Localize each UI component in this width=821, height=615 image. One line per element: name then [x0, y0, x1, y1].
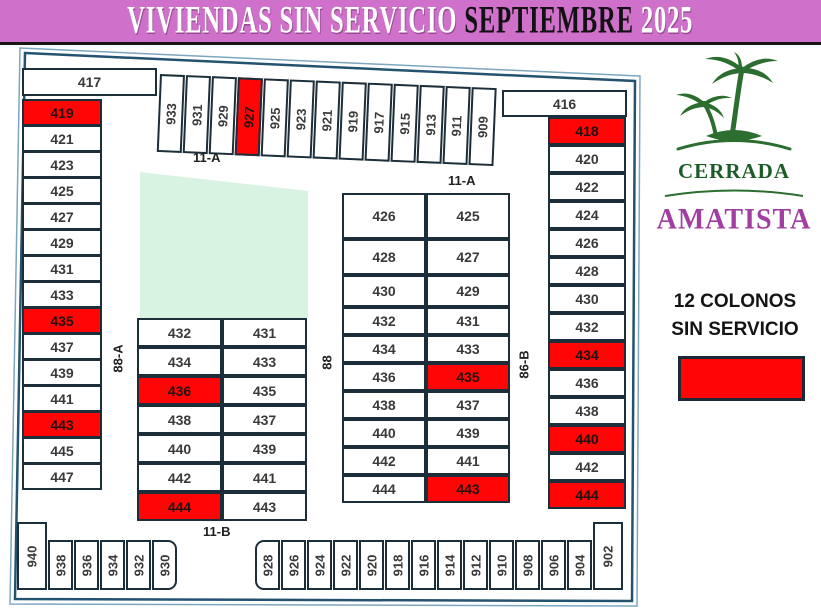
lot-number: 422	[575, 179, 598, 195]
lot-number: 416	[553, 96, 576, 112]
logo-name-top: CERRADA	[650, 159, 818, 184]
lot-number: 439	[456, 425, 479, 441]
lot-number: 908	[520, 554, 535, 576]
lot-number: 427	[456, 249, 479, 265]
lot-443: 443	[22, 411, 102, 438]
lot-417: 417	[22, 68, 157, 96]
lot-442: 442	[137, 463, 222, 492]
lot-number: 425	[50, 183, 73, 199]
street-label-11b: 11-B	[203, 524, 230, 539]
lot-number: 440	[575, 431, 598, 447]
lot-436: 436	[342, 363, 426, 391]
lot-440: 440	[137, 434, 222, 463]
left-lot-column: 4194214234254274294314334354374394414434…	[22, 100, 102, 490]
lot-932: 932	[126, 540, 151, 590]
logo-cerrada-amatista: CERRADA AMATISTA	[650, 52, 818, 236]
street-label-text: 86-B	[517, 350, 532, 378]
lot-number: 431	[456, 313, 479, 329]
lot-row: 426425	[342, 193, 510, 239]
lot-915: 915	[391, 84, 419, 163]
lot-928: 928	[255, 540, 280, 590]
lot-number: 443	[456, 481, 479, 497]
lot-number: 921	[319, 109, 335, 131]
right-lot-column: 4184204224244264284304324344364384404424…	[548, 117, 626, 509]
lot-441: 441	[22, 385, 102, 412]
lot-number: 902	[600, 545, 615, 567]
lot-427: 427	[426, 239, 510, 275]
lot-number: 918	[390, 554, 405, 576]
lot-419: 419	[22, 99, 102, 126]
lot-435: 435	[22, 307, 102, 334]
lot-929: 929	[209, 76, 237, 155]
lot-440: 440	[342, 419, 426, 447]
street-label-86b: 86-B	[506, 338, 542, 390]
lot-number: 911	[449, 115, 465, 137]
lot-938: 938	[48, 540, 73, 590]
lot-421: 421	[22, 125, 102, 152]
lot-row: 428427	[342, 239, 510, 275]
lot-436: 436	[137, 376, 222, 405]
street-label-11a-right: 11-A	[448, 173, 475, 188]
lot-number: 435	[253, 383, 276, 399]
palm-trees-icon	[664, 52, 804, 156]
lot-433: 433	[222, 347, 307, 376]
logo-name-bottom: AMATISTA	[650, 203, 818, 237]
lot-number: 428	[372, 249, 395, 265]
lot-number: 430	[372, 283, 395, 299]
lot-437: 437	[222, 405, 307, 434]
legend-caption-line2: SIN SERVICIO	[655, 316, 815, 344]
lot-number: 922	[338, 554, 353, 576]
lot-445: 445	[22, 437, 102, 464]
lot-431: 431	[222, 318, 307, 347]
lot-number: 914	[442, 554, 457, 576]
lot-426: 426	[342, 193, 426, 239]
lot-number: 429	[456, 283, 479, 299]
lot-430: 430	[342, 275, 426, 307]
lot-number: 421	[50, 131, 73, 147]
lot-number: 441	[456, 453, 479, 469]
lot-444: 444	[137, 492, 222, 521]
lot-number: 444	[372, 481, 395, 497]
lot-number: 931	[189, 103, 205, 125]
lot-927: 927	[235, 77, 263, 156]
lot-916: 916	[411, 540, 436, 590]
lot-number: 433	[50, 287, 73, 303]
center-left-lot-block: 4324314344334364354384374404394424414444…	[137, 318, 307, 521]
lot-number: 938	[53, 554, 68, 576]
lot-number: 424	[575, 207, 598, 223]
lot-431: 431	[426, 307, 510, 335]
lot-number: 445	[50, 443, 73, 459]
lot-row: 432431	[342, 307, 510, 335]
lot-number: 435	[456, 369, 479, 385]
lot-933: 933	[157, 74, 185, 153]
lot-number: 917	[371, 111, 387, 133]
lot-number: 925	[267, 107, 283, 129]
lot-number: 441	[50, 391, 73, 407]
lot-number: 936	[79, 554, 94, 576]
lot-433: 433	[22, 281, 102, 308]
lot-440: 440	[548, 425, 626, 453]
lot-row: 440439	[342, 419, 510, 447]
lot-number: 442	[372, 453, 395, 469]
lot-442: 442	[548, 453, 626, 481]
lot-435: 435	[426, 363, 510, 391]
lot-number: 920	[364, 554, 379, 576]
lot-row: 438437	[342, 391, 510, 419]
lot-426: 426	[548, 229, 626, 257]
lot-number: 426	[575, 235, 598, 251]
lot-931: 931	[183, 75, 211, 154]
lot-909: 909	[468, 87, 496, 166]
lot-row: 430429	[342, 275, 510, 307]
lot-422: 422	[548, 173, 626, 201]
lot-number: 912	[468, 554, 483, 576]
lot-434: 434	[342, 335, 426, 363]
lot-441: 441	[426, 447, 510, 475]
lot-444: 444	[548, 481, 626, 509]
lot-430: 430	[548, 285, 626, 313]
lot-936: 936	[74, 540, 99, 590]
lot-number: 426	[372, 208, 395, 224]
lot-number: 430	[575, 291, 598, 307]
title-year: 2025	[641, 0, 693, 42]
lot-912: 912	[463, 540, 488, 590]
street-label-text: 88	[320, 355, 335, 369]
lot-425: 425	[426, 193, 510, 239]
lot-number: 440	[168, 441, 191, 457]
lot-930: 930	[152, 540, 177, 590]
lot-923: 923	[287, 79, 315, 158]
lot-917: 917	[365, 83, 393, 162]
lot-number: 437	[50, 339, 73, 355]
lot-number: 443	[50, 417, 73, 433]
lot-number: 418	[575, 123, 598, 139]
lot-row: 436435	[342, 363, 510, 391]
lot-row: 436435	[137, 376, 307, 405]
lot-447: 447	[22, 463, 102, 490]
lot-444: 444	[342, 475, 426, 503]
lot-number: 432	[372, 313, 395, 329]
lot-425: 425	[22, 177, 102, 204]
lot-436: 436	[548, 369, 626, 397]
lot-row: 444443	[137, 492, 307, 521]
lot-row: 442441	[137, 463, 307, 492]
lot-906: 906	[541, 540, 566, 590]
lot-number: 447	[50, 469, 73, 485]
lot-432: 432	[342, 307, 426, 335]
lot-row: 442441	[342, 447, 510, 475]
lot-443: 443	[426, 475, 510, 503]
lot-922: 922	[333, 540, 358, 590]
lot-918: 918	[385, 540, 410, 590]
lot-number: 910	[494, 554, 509, 576]
lot-number: 435	[50, 313, 73, 329]
lot-434: 434	[137, 347, 222, 376]
lot-439: 439	[222, 434, 307, 463]
lot-number: 904	[572, 554, 587, 576]
lot-number: 906	[546, 554, 561, 576]
lot-number: 928	[260, 554, 275, 576]
lot-number: 927	[241, 106, 257, 128]
lot-913: 913	[417, 85, 445, 164]
lot-number: 431	[50, 261, 73, 277]
lot-row: 440439	[137, 434, 307, 463]
lot-904: 904	[567, 540, 592, 590]
lot-number: 438	[372, 397, 395, 413]
lot-number: 916	[416, 554, 431, 576]
lot-number: 441	[253, 470, 276, 486]
lot-910: 910	[489, 540, 514, 590]
street-label-text: 88-A	[111, 344, 126, 372]
lot-429: 429	[426, 275, 510, 307]
title-bar: VIVIENDAS SIN SERVICIO SEPTIEMBRE 2025	[0, 0, 821, 45]
lot-924: 924	[307, 540, 332, 590]
lot-908: 908	[515, 540, 540, 590]
lot-number: 437	[253, 412, 276, 428]
street-label-11a-top: 11-A	[193, 150, 220, 165]
lot-number: 933	[163, 102, 179, 124]
lot-number: 919	[345, 110, 361, 132]
lot-443: 443	[222, 492, 307, 521]
lot-number: 432	[575, 319, 598, 335]
lot-940: 940	[17, 522, 47, 590]
lot-442: 442	[342, 447, 426, 475]
lot-number: 442	[575, 459, 598, 475]
lot-row: 438437	[137, 405, 307, 434]
lot-number: 429	[50, 235, 73, 251]
center-right-lot-block: 4264254284274304294324314344334364354384…	[342, 193, 510, 503]
lot-437: 437	[22, 333, 102, 360]
lot-number: 915	[397, 112, 413, 134]
lot-row: 434433	[342, 335, 510, 363]
legend-red-swatch	[678, 356, 805, 401]
lot-427: 427	[22, 203, 102, 230]
lot-number: 909	[475, 115, 491, 137]
lot-429: 429	[22, 229, 102, 256]
lot-number: 439	[50, 365, 73, 381]
title-main: VIVIENDAS SIN SERVICIO	[127, 0, 457, 42]
lot-934: 934	[100, 540, 125, 590]
lot-number: 934	[105, 554, 120, 576]
lot-420: 420	[548, 145, 626, 173]
lot-number: 439	[253, 441, 276, 457]
lot-row: 444443	[342, 475, 510, 503]
lot-number: 427	[50, 209, 73, 225]
lot-number: 926	[286, 554, 301, 576]
lot-number: 923	[293, 108, 309, 130]
lot-418: 418	[548, 117, 626, 145]
lot-431: 431	[22, 255, 102, 282]
lot-438: 438	[137, 405, 222, 434]
lot-920: 920	[359, 540, 384, 590]
lot-432: 432	[548, 313, 626, 341]
lot-number: 436	[575, 375, 598, 391]
lot-number: 924	[312, 554, 327, 576]
logo-underline-arc	[659, 189, 809, 197]
lot-423: 423	[22, 151, 102, 178]
lot-number: 929	[215, 105, 231, 127]
bottom-left-lot-row: 940938936934932930	[17, 522, 177, 590]
lot-number: 940	[24, 545, 39, 567]
lot-416: 416	[502, 90, 627, 117]
lot-902: 902	[593, 522, 623, 590]
title-month: SEPTIEMBRE	[465, 0, 635, 42]
lot-919: 919	[339, 82, 367, 161]
lot-439: 439	[426, 419, 510, 447]
lot-424: 424	[548, 201, 626, 229]
lot-437: 437	[426, 391, 510, 419]
lot-number: 420	[575, 151, 598, 167]
lot-926: 926	[281, 540, 306, 590]
lot-number: 434	[372, 341, 395, 357]
lot-number: 437	[456, 397, 479, 413]
lot-921: 921	[313, 81, 341, 160]
lot-number: 432	[168, 325, 191, 341]
lot-914: 914	[437, 540, 462, 590]
lot-438: 438	[342, 391, 426, 419]
lot-number: 436	[168, 383, 191, 399]
lot-number: 440	[372, 425, 395, 441]
lot-number: 438	[168, 412, 191, 428]
lot-435: 435	[222, 376, 307, 405]
lot-number: 434	[575, 347, 598, 363]
lot-number: 434	[168, 354, 191, 370]
lot-number: 444	[168, 499, 191, 515]
lot-number: 932	[131, 554, 146, 576]
lot-number: 913	[423, 113, 439, 135]
lot-number: 444	[575, 487, 598, 503]
green-park-area	[140, 172, 308, 318]
lot-number: 419	[50, 105, 73, 121]
lot-911: 911	[442, 86, 470, 165]
page-title: VIVIENDAS SIN SERVICIO SEPTIEMBRE 2025	[127, 0, 693, 43]
lot-number: 433	[456, 341, 479, 357]
lot-number: 433	[253, 354, 276, 370]
lot-number: 436	[372, 369, 395, 385]
lot-433: 433	[426, 335, 510, 363]
legend-caption-line1: 12 COLONOS	[655, 288, 815, 316]
lot-number: 443	[253, 499, 276, 515]
lot-438: 438	[548, 397, 626, 425]
lot-925: 925	[261, 78, 289, 157]
lot-number: 431	[253, 325, 276, 341]
lot-number: 438	[575, 403, 598, 419]
street-label-88: 88	[312, 340, 342, 384]
lot-number: 442	[168, 470, 191, 486]
lot-428: 428	[342, 239, 426, 275]
lot-number: 428	[575, 263, 598, 279]
lot-number: 425	[456, 208, 479, 224]
lot-number: 423	[50, 157, 73, 173]
bottom-right-lot-row: 9289269249229209189169149129109089069049…	[255, 522, 623, 590]
legend-caption: 12 COLONOS SIN SERVICIO	[655, 288, 815, 343]
lot-434: 434	[548, 341, 626, 369]
lot-number: 930	[157, 554, 172, 576]
lot-439: 439	[22, 359, 102, 386]
lot-number: 417	[78, 74, 101, 90]
street-label-88a: 88-A	[100, 332, 136, 384]
lot-428: 428	[548, 257, 626, 285]
lot-441: 441	[222, 463, 307, 492]
lot-row: 434433	[137, 347, 307, 376]
lot-432: 432	[137, 318, 222, 347]
lot-row: 432431	[137, 318, 307, 347]
